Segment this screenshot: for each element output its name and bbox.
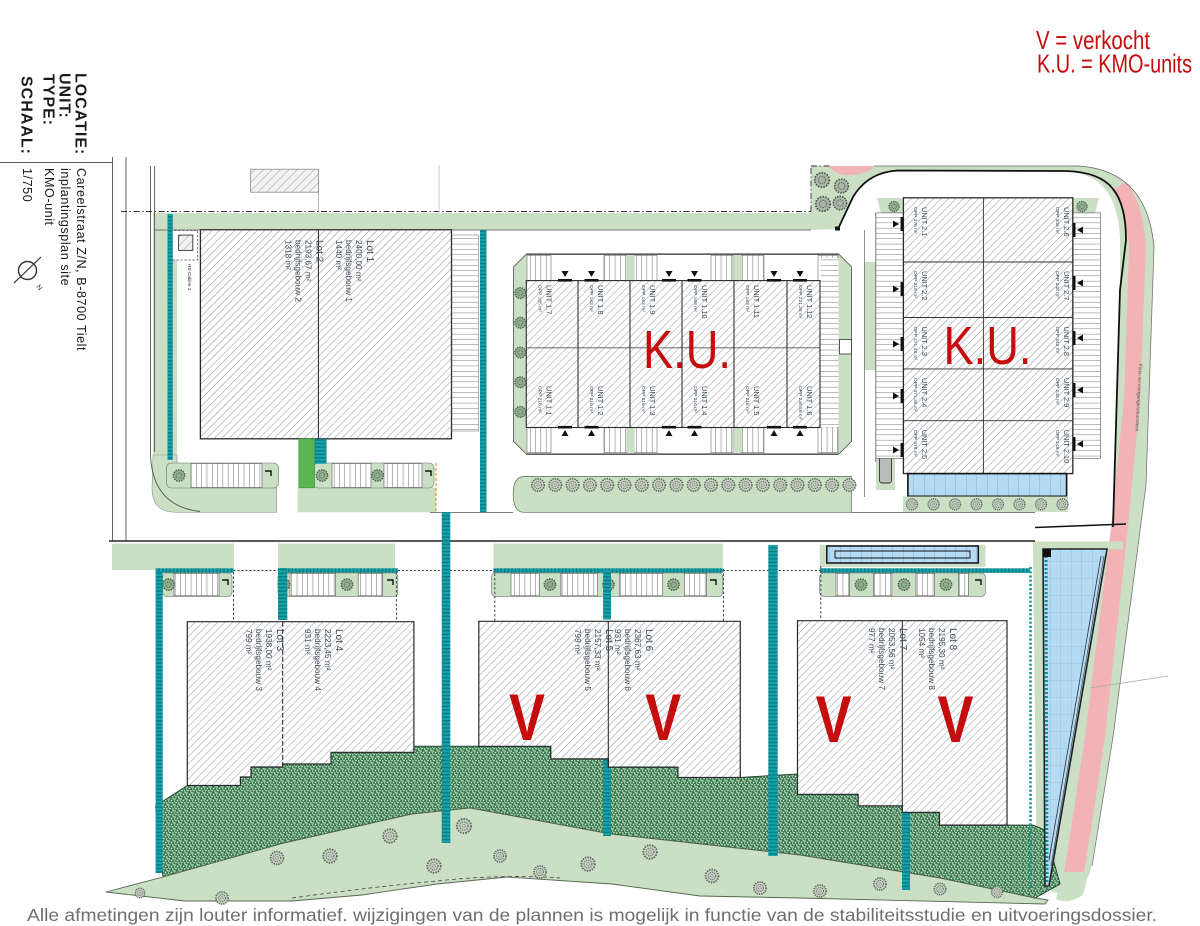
svg-text:UNIT 1.7OPP 165 m²: UNIT 1.7OPP 165 m² [536, 285, 553, 314]
svg-text:UNIT 1.5OPP 216 m²: UNIT 1.5OPP 216 m² [744, 386, 761, 415]
svg-text:UNIT 2.6OPP 306 m²: UNIT 2.6OPP 306 m² [1054, 207, 1071, 236]
svg-text:UNIT 1.9OPP 163 m²: UNIT 1.9OPP 163 m² [640, 285, 657, 314]
svg-text:K.U. = KMO-units: K.U. = KMO-units [1037, 49, 1192, 79]
svg-text:UNIT 2.9OPP 248 m²: UNIT 2.9OPP 248 m² [1054, 378, 1071, 407]
svg-text:UNIT 2.4OPP 371,36 m²: UNIT 2.4OPP 371,36 m² [912, 378, 929, 412]
svg-text:inplantingsplan site: inplantingsplan site [58, 168, 72, 286]
svg-text:UNIT 1.12OPP 221,28 m²: UNIT 1.12OPP 221,28 m² [797, 285, 814, 319]
svg-text:UNIT 1.1OPP 216 m²: UNIT 1.1OPP 216 m² [536, 386, 553, 415]
svg-text:UNIT 2.7OPP 248 m²: UNIT 2.7OPP 248 m² [1054, 271, 1071, 300]
svg-text:V: V [816, 682, 852, 756]
svg-text:1/750: 1/750 [20, 168, 34, 202]
svg-text:UNIT 2.8OPP 340 m²: UNIT 2.8OPP 340 m² [1054, 327, 1071, 356]
svg-text:HS-Cabine 1: HS-Cabine 1 [187, 264, 192, 291]
svg-text:UNIT 2.1OPP 375 m²: UNIT 2.1OPP 375 m² [912, 207, 929, 236]
svg-text:UNIT 1.6OPP 246,58 m²: UNIT 1.6OPP 246,58 m² [797, 386, 814, 420]
svg-text:V: V [938, 682, 974, 756]
svg-text:K.U.: K.U. [944, 316, 1032, 376]
svg-text:V: V [509, 680, 545, 754]
svg-text:UNIT 2.5OPP 378 m²: UNIT 2.5OPP 378 m² [912, 430, 929, 459]
svg-text:Careelstraat Z/N, B-8700 Tielt: Careelstraat Z/N, B-8700 Tielt [74, 168, 88, 351]
svg-text:KMO-unit: KMO-unit [42, 168, 56, 226]
svg-text:Alle afmetingen zijn louter in: Alle afmetingen zijn louter informatief.… [27, 905, 1157, 925]
svg-text:UNIT 1.4OPP 216 m²: UNIT 1.4OPP 216 m² [692, 386, 709, 415]
svg-text:UNIT 1.8OPP 163 m²: UNIT 1.8OPP 163 m² [588, 285, 605, 314]
svg-text:SCHAAL:: SCHAAL: [18, 76, 35, 155]
svg-text:LOCATIE:: LOCATIE: [72, 73, 89, 155]
svg-text:UNIT:: UNIT: [56, 73, 73, 119]
svg-text:UNIT 2.2OPP 218 m²: UNIT 2.2OPP 218 m² [912, 271, 929, 300]
svg-text:UNIT 1.3OPP 216 m²: UNIT 1.3OPP 216 m² [640, 386, 657, 415]
svg-text:UNIT 1.2OPP 216 m²: UNIT 1.2OPP 216 m² [588, 386, 605, 415]
svg-text:K.U.: K.U. [643, 320, 731, 380]
svg-text:V: V [645, 680, 681, 754]
svg-text:UNIT 2.3OPP 371,48 m²: UNIT 2.3OPP 371,48 m² [912, 327, 929, 361]
svg-text:TYPE:: TYPE: [40, 74, 57, 126]
